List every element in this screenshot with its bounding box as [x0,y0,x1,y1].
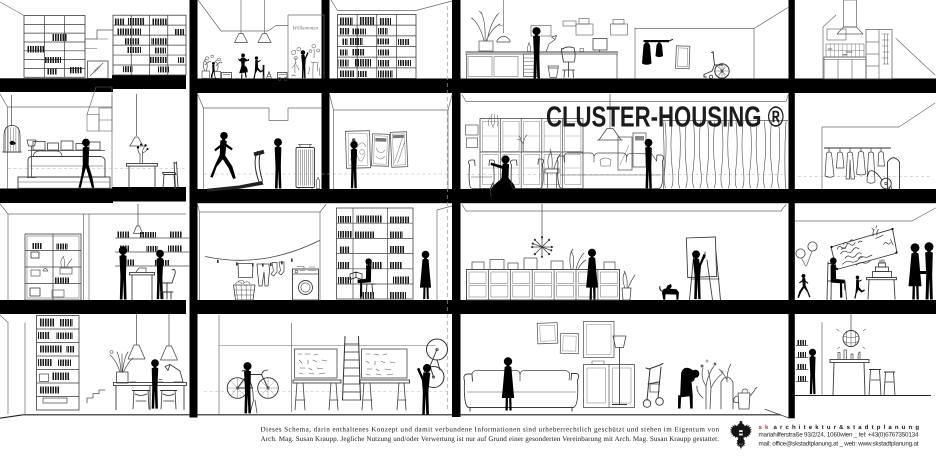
svg-text:CLUSTER-HOUSING ®: CLUSTER-HOUSING ® [546,102,784,134]
svg-text:Dieses Schema, darin enthalten: Dieses Schema, darin enthaltenes Konzept… [261,426,720,434]
svg-text:Willkommen: Willkommen [293,26,319,32]
svg-text:mail: office@skstadtplanung.at: mail: office@skstadtplanung.at _ web: ww… [759,440,919,447]
svg-text:mariahilferstraße 93/2/24, 106: mariahilferstraße 93/2/24, 1060wien _ te… [759,432,919,439]
svg-text:Arch. Mag. Susan Kraupp. Jegli: Arch. Mag. Susan Kraupp. Jegliche Nutzun… [261,435,720,443]
